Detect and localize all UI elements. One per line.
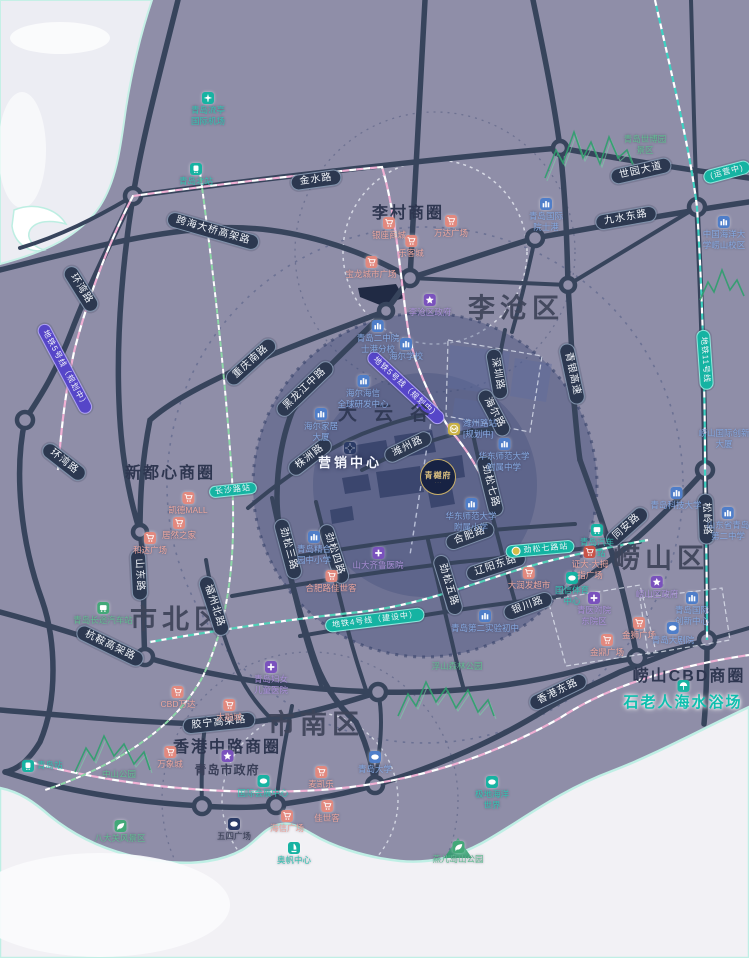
poi-item: 大融城 xyxy=(216,699,242,723)
poi-label: 国际会展中心 xyxy=(237,788,288,799)
cart-icon xyxy=(223,699,235,711)
poi-label: 大润发超市 xyxy=(508,580,551,591)
poi-item: 华东师范大学附属中学 xyxy=(478,438,529,473)
poi-label-line: 世界 xyxy=(475,800,509,811)
cart-icon xyxy=(523,567,535,579)
poi-label-line: 八大关风景区 xyxy=(94,833,145,844)
poi-item: 极地海洋世界 xyxy=(475,776,509,811)
poi-label: 五四广场 xyxy=(217,831,251,842)
poi-item: 青岛长途汽车站 xyxy=(73,602,133,626)
cart-icon xyxy=(383,217,395,229)
poi-label-line: 儿童医院 xyxy=(254,685,288,696)
poi-label-line: 石老人海水浴场 xyxy=(623,693,742,713)
road-label: 青银高速 xyxy=(558,342,587,406)
poi-item: 华东师范大学附属小学 xyxy=(445,498,496,533)
district-label: 李沧区 xyxy=(468,287,564,326)
road-label: 环湾路 xyxy=(39,440,89,484)
plane-icon xyxy=(202,92,214,104)
poi-label-line: 佳世客 xyxy=(314,813,340,824)
school-icon xyxy=(722,507,734,519)
poi-label: 青岛流亭国际机场 xyxy=(191,105,225,127)
poi-item: 证大·大拇指广场 xyxy=(572,546,609,581)
poi-label: 麦凯乐 xyxy=(308,779,334,790)
poi-label-line: 居然之家 xyxy=(162,530,196,541)
poi-label-line: 青岛精合 xyxy=(297,544,331,555)
poi-label-line: 合肥路佳世客 xyxy=(305,583,356,594)
poi-label: 崂山区政府 xyxy=(636,589,679,600)
district-label: 市南区 xyxy=(268,703,364,742)
poi-item: 李沧区政府 xyxy=(409,294,452,318)
poi-label-line: 青岛国际 xyxy=(675,605,709,616)
poi-item: 青岛大学 xyxy=(358,751,392,775)
blob-icon xyxy=(228,818,240,830)
poi-label: 青岛科技大学 xyxy=(650,500,701,511)
poi-label-line: 海尔海信 xyxy=(337,388,388,399)
cart-icon xyxy=(365,256,377,268)
cart-icon xyxy=(633,617,645,629)
poi-label: 中山公园 xyxy=(102,769,136,780)
poi-label-line: 中山公园 xyxy=(102,769,136,780)
map-canvas: 大云谷 青樾府 · · · 李沧区崂山区市北区市南区李村商圈新都心商圈香港中路商… xyxy=(0,0,749,958)
poi-item: 万达广场 xyxy=(434,215,468,239)
poi-label-line: 国际机场 xyxy=(191,116,225,127)
poi-label: 佳世客 xyxy=(314,813,340,824)
poi-item: 青岛站 xyxy=(22,760,63,772)
poi-item: 八大关风景区 xyxy=(94,820,145,844)
poi-label-line: 附属中学 xyxy=(478,462,529,473)
umb-icon xyxy=(677,680,689,692)
poi-label: 浮山森林公园 xyxy=(431,661,482,672)
poi-label-line: 青岛科技大学 xyxy=(650,500,701,511)
poi-label-line: 青岛站 xyxy=(37,760,63,771)
metro-line-label: (运营中) xyxy=(702,159,749,185)
cart-icon xyxy=(281,810,293,822)
blob-icon xyxy=(369,751,381,763)
poi-label-line: 极地海洋 xyxy=(475,789,509,800)
poi-item: 海尔海信全球研发中心 xyxy=(337,375,388,410)
cart-icon xyxy=(325,570,337,582)
poi-label-line: 全球研发中心 xyxy=(337,399,388,410)
poi-label: 青岛大学 xyxy=(358,764,392,775)
poi-item: 中山公园 xyxy=(102,769,136,780)
poi-item: 浮山森林公园 xyxy=(431,661,482,672)
metro-line-label: 地铁4号线（建设中） xyxy=(324,607,425,633)
poi-label: 居然之家 xyxy=(162,530,196,541)
poi-item: 青岛国际院士港 xyxy=(529,198,563,233)
school-icon xyxy=(479,610,491,622)
poi-label-line: 乐客城 xyxy=(398,248,424,259)
poi-label-line: 大融城 xyxy=(216,712,242,723)
poi-label-line: 山大齐鲁医院 xyxy=(352,560,403,571)
cart-icon xyxy=(321,800,333,812)
poi-label-line: 青岛长途汽车站 xyxy=(73,615,133,626)
poi-label: 崂山国际创新大厦 xyxy=(698,428,749,450)
poi-item: 青岛大剧院 xyxy=(652,622,695,646)
school-icon xyxy=(686,592,698,604)
cross-icon xyxy=(372,547,384,559)
poi-label: 中国海洋大学崂山校区 xyxy=(703,229,746,251)
poi-item: 潍州路站[规划中] xyxy=(448,418,497,440)
cart-icon xyxy=(173,517,185,529)
poi-label-line: 凯德MALL xyxy=(168,505,207,516)
poi-label-line: 崂山国际创新 xyxy=(698,428,749,439)
poi-item: 山东省青岛第二中学 xyxy=(707,507,749,542)
school-icon xyxy=(498,438,510,450)
business-circle-label: 新都心商圈 xyxy=(125,459,215,483)
poi-label-line: 金鼎广场 xyxy=(590,647,624,658)
metro-station-label: 长沙路站 xyxy=(209,482,258,499)
school-icon xyxy=(372,320,384,332)
poi-label-line: 万象城 xyxy=(157,759,183,770)
poi-label: 青岛妇女儿童医院 xyxy=(254,674,288,696)
poi-label-line: 华东师范大学 xyxy=(478,451,529,462)
poi-label-line: 宝龙城市广场 xyxy=(345,269,396,280)
poi-label-line: 麦凯乐 xyxy=(308,779,334,790)
school-icon xyxy=(670,487,682,499)
train-icon xyxy=(22,760,34,772)
poi-label: 海信广场 xyxy=(270,823,304,834)
poi-label-line: 青岛大学 xyxy=(358,764,392,775)
bus-icon xyxy=(97,602,109,614)
poi-label-line: 指广场 xyxy=(572,570,609,581)
poi-label: 青岛站 xyxy=(37,760,63,771)
poi-item: 青岛科技大学 xyxy=(650,487,701,511)
school-icon xyxy=(400,338,412,350)
poi-label: 青岛北站 xyxy=(179,176,213,187)
road-label: 跨海大桥高架路 xyxy=(165,210,261,252)
poi-item: 凯德MALL xyxy=(168,492,207,516)
school-icon xyxy=(315,408,327,420)
road-label: 重庆南路 xyxy=(223,335,280,388)
poi-label-line: 崂山区政府 xyxy=(636,589,679,600)
poi-label-line: 李沧区政府 xyxy=(409,307,452,318)
cart-icon xyxy=(172,686,184,698)
poi-item: 营销中心 xyxy=(318,442,382,472)
poi-item: 居然之家 xyxy=(162,517,196,541)
poi-label: 万达广场 xyxy=(434,228,468,239)
poi-label-line: 燕儿岛山公园 xyxy=(432,854,483,865)
poi-label: 华东师范大学附属中学 xyxy=(478,451,529,473)
poi-label-line: 华东师范大学 xyxy=(445,511,496,522)
poi-label-line: 青岛妇女 xyxy=(254,674,288,685)
compass-icon xyxy=(344,442,356,454)
metro-station-text: 长沙路站 xyxy=(215,483,252,496)
poi-label: CBD万达 xyxy=(161,699,196,710)
school-icon xyxy=(718,216,730,228)
blob-icon xyxy=(257,775,269,787)
poi-label-line: 第二中学 xyxy=(707,531,749,542)
sail-icon xyxy=(288,842,300,854)
poi-label-line: [规划中] xyxy=(463,429,497,440)
poi-item: 万象城 xyxy=(157,746,183,770)
poi-label: 华东师范大学附属小学 xyxy=(445,511,496,533)
poi-item: 中国海洋大学崂山校区 xyxy=(703,216,746,251)
poi-item: 五四广场 xyxy=(217,818,251,842)
poi-label: 万象城 xyxy=(157,759,183,770)
poi-label-line: CBD万达 xyxy=(161,699,196,710)
poi-label-line: 证大·大拇 xyxy=(572,559,609,570)
road-label: 山东路 xyxy=(130,549,149,601)
poi-label: 海尔学校 xyxy=(389,351,423,362)
poi-label: 金鼎广场 xyxy=(590,647,624,658)
project-logo-text: 青樾府 xyxy=(425,470,452,481)
road-label: 世园大道 xyxy=(609,156,673,186)
poi-label: 合肥路佳世客 xyxy=(305,583,356,594)
cross-icon xyxy=(588,592,600,604)
poi-label-line: 大润发超市 xyxy=(508,580,551,591)
star5-icon xyxy=(221,750,233,762)
poi-label-line: 青岛第二实验初中 xyxy=(451,623,519,634)
poi-label-line: 营销中心 xyxy=(318,455,382,472)
metro-station-text: 劲松七路站 xyxy=(523,542,569,555)
poi-label: 营销中心 xyxy=(318,455,382,472)
poi-label: 八大关风景区 xyxy=(94,833,145,844)
poi-label-line: 万达广场 xyxy=(434,228,468,239)
metro-roundel-icon xyxy=(511,546,521,556)
leaf-icon xyxy=(452,841,464,853)
poi-label: 青岛长途汽车站 xyxy=(73,615,133,626)
poi-label: 燕儿岛山公园 xyxy=(432,854,483,865)
blob-icon xyxy=(667,622,679,634)
poi-label-line: 海尔学校 xyxy=(389,351,423,362)
cart-icon xyxy=(601,634,613,646)
poi-label: 极地海洋世界 xyxy=(475,789,509,811)
poi-item: 青岛精合园中小学 xyxy=(297,531,331,566)
poi-item: 国际会展中心 xyxy=(237,775,288,799)
poi-item: 青岛世博园景区 xyxy=(624,134,667,156)
school-icon xyxy=(357,375,369,387)
cart-icon xyxy=(144,532,156,544)
metro-icon xyxy=(448,423,460,435)
labels-layer: 大云谷 青樾府 · · · 李沧区崂山区市北区市南区李村商圈新都心商圈香港中路商… xyxy=(0,0,749,958)
poi-label: 乐客城 xyxy=(398,248,424,259)
poi-item: 崂山国际创新大厦 xyxy=(698,428,749,450)
poi-label: 李沧区政府 xyxy=(409,307,452,318)
poi-label: 凯德MALL xyxy=(168,505,207,516)
metro-line-label: 地铁11号线 xyxy=(696,329,714,390)
road-label: 金水路 xyxy=(290,169,343,192)
star5-icon xyxy=(651,576,663,588)
poi-label: 大融城 xyxy=(216,712,242,723)
poi-label-line: 青医附院 xyxy=(577,605,611,616)
poi-label: 潍州路站[规划中] xyxy=(463,418,497,440)
poi-label: 证大·大拇指广场 xyxy=(572,559,609,581)
project-logo-subtext: · · · xyxy=(435,481,441,485)
poi-item: 金鼎广场 xyxy=(590,634,624,658)
poi-label-line: 东院区 xyxy=(577,616,611,627)
cart-icon xyxy=(164,746,176,758)
poi-item: 大润发超市 xyxy=(508,567,551,591)
poi-label: 青岛第二实验初中 xyxy=(451,623,519,634)
poi-item: 佳世客 xyxy=(314,800,340,824)
poi-label-line: 大厦 xyxy=(698,439,749,450)
poi-label-line: 青岛流亭 xyxy=(191,105,225,116)
poi-label: 山大齐鲁医院 xyxy=(352,560,403,571)
poi-label: 宝龙城市广场 xyxy=(345,269,396,280)
poi-item: 麦凯乐 xyxy=(308,766,334,790)
road-label: 劲松五路 xyxy=(431,553,464,617)
poi-label-line: 海尔家居 xyxy=(304,421,338,432)
poi-label-line: 青岛大剧院 xyxy=(652,635,695,646)
poi-label-line: 园中小学 xyxy=(297,555,331,566)
poi-item: 奥帆中心 xyxy=(277,842,311,866)
poi-item: 青岛第二实验初中 xyxy=(451,610,519,634)
poi-label: 奥帆中心 xyxy=(277,855,311,866)
poi-label: 海尔家居大厦 xyxy=(304,421,338,443)
poi-label-line: 五四广场 xyxy=(217,831,251,842)
poi-label-line: 青岛国际 xyxy=(529,211,563,222)
cart-icon xyxy=(584,546,596,558)
road-label: 环湾路 xyxy=(61,263,102,315)
school-icon xyxy=(308,531,320,543)
poi-label: 山东省青岛第二中学 xyxy=(707,520,749,542)
poi-item: 海尔家居大厦 xyxy=(304,408,338,443)
road-label: 潍州路 xyxy=(382,429,435,466)
leaf-icon xyxy=(114,820,126,832)
poi-item: 崂山区政府 xyxy=(636,576,679,600)
poi-label: 石老人海水浴场 xyxy=(623,693,742,713)
school-icon xyxy=(540,198,552,210)
poi-label: 和达广场 xyxy=(133,545,167,556)
poi-item: 青医附院东院区 xyxy=(577,592,611,627)
poi-label: 海尔海信全球研发中心 xyxy=(337,388,388,410)
blob-icon xyxy=(486,776,498,788)
poi-label-line: 景区 xyxy=(624,145,667,156)
poi-label: 青岛国际院士港 xyxy=(529,211,563,233)
cart-icon xyxy=(315,766,327,778)
poi-label-line: 和达广场 xyxy=(133,545,167,556)
poi-item: 石老人海水浴场 xyxy=(623,680,742,713)
poi-label: 青岛精合园中小学 xyxy=(297,544,331,566)
poi-label-line: 青岛世博园 xyxy=(624,134,667,145)
cart-icon xyxy=(405,235,417,247)
poi-item: 青岛流亭国际机场 xyxy=(191,92,225,127)
poi-label-line: 院士港 xyxy=(529,222,563,233)
poi-label-line: 学崂山校区 xyxy=(703,240,746,251)
poi-item: CBD万达 xyxy=(161,686,196,710)
train-icon xyxy=(190,163,202,175)
cart-icon xyxy=(182,492,194,504)
poi-label: 青岛世博园景区 xyxy=(624,134,667,156)
school-icon xyxy=(465,498,477,510)
road-label: 香港东路 xyxy=(527,671,590,713)
metro-station-label: 劲松七路站 xyxy=(505,540,575,559)
poi-item: 合肥路佳世客 xyxy=(305,570,356,594)
poi-label-line: 山东省青岛 xyxy=(707,520,749,531)
poi-label: 青医附院东院区 xyxy=(577,605,611,627)
poi-label-line: 奥帆中心 xyxy=(277,855,311,866)
poi-item: 海信广场 xyxy=(270,810,304,834)
poi-item: 山大齐鲁医院 xyxy=(352,547,403,571)
poi-label-line: 浮山森林公园 xyxy=(431,661,482,672)
road-label: 九水东路 xyxy=(594,205,658,232)
poi-label-line: 附属小学 xyxy=(445,522,496,533)
poi-item: 青岛北站 xyxy=(179,163,213,187)
poi-item: 青岛妇女儿童医院 xyxy=(254,661,288,696)
district-label: 崂山区 xyxy=(613,537,709,576)
metro-line-label: 地铁5号线（规划中） xyxy=(35,321,95,416)
project-logo: 青樾府 · · · xyxy=(420,459,456,495)
cart-icon xyxy=(445,215,457,227)
poi-label-line: 国际会展中心 xyxy=(237,788,288,799)
poi-label: 青岛大剧院 xyxy=(652,635,695,646)
poi-item: 宝龙城市广场 xyxy=(345,256,396,280)
poi-item: 海尔学校 xyxy=(389,338,423,362)
bus-icon xyxy=(591,524,603,536)
poi-item: 和达广场 xyxy=(133,532,167,556)
poi-item: 乐客城 xyxy=(398,235,424,259)
poi-label-line: 海信广场 xyxy=(270,823,304,834)
cross-icon xyxy=(265,661,277,673)
star5-icon xyxy=(424,294,436,306)
poi-label-line: 潍州路站 xyxy=(463,418,497,429)
poi-item: 燕儿岛山公园 xyxy=(432,841,483,865)
poi-label-line: 青岛北站 xyxy=(179,176,213,187)
poi-label-line: 中国海洋大 xyxy=(703,229,746,240)
